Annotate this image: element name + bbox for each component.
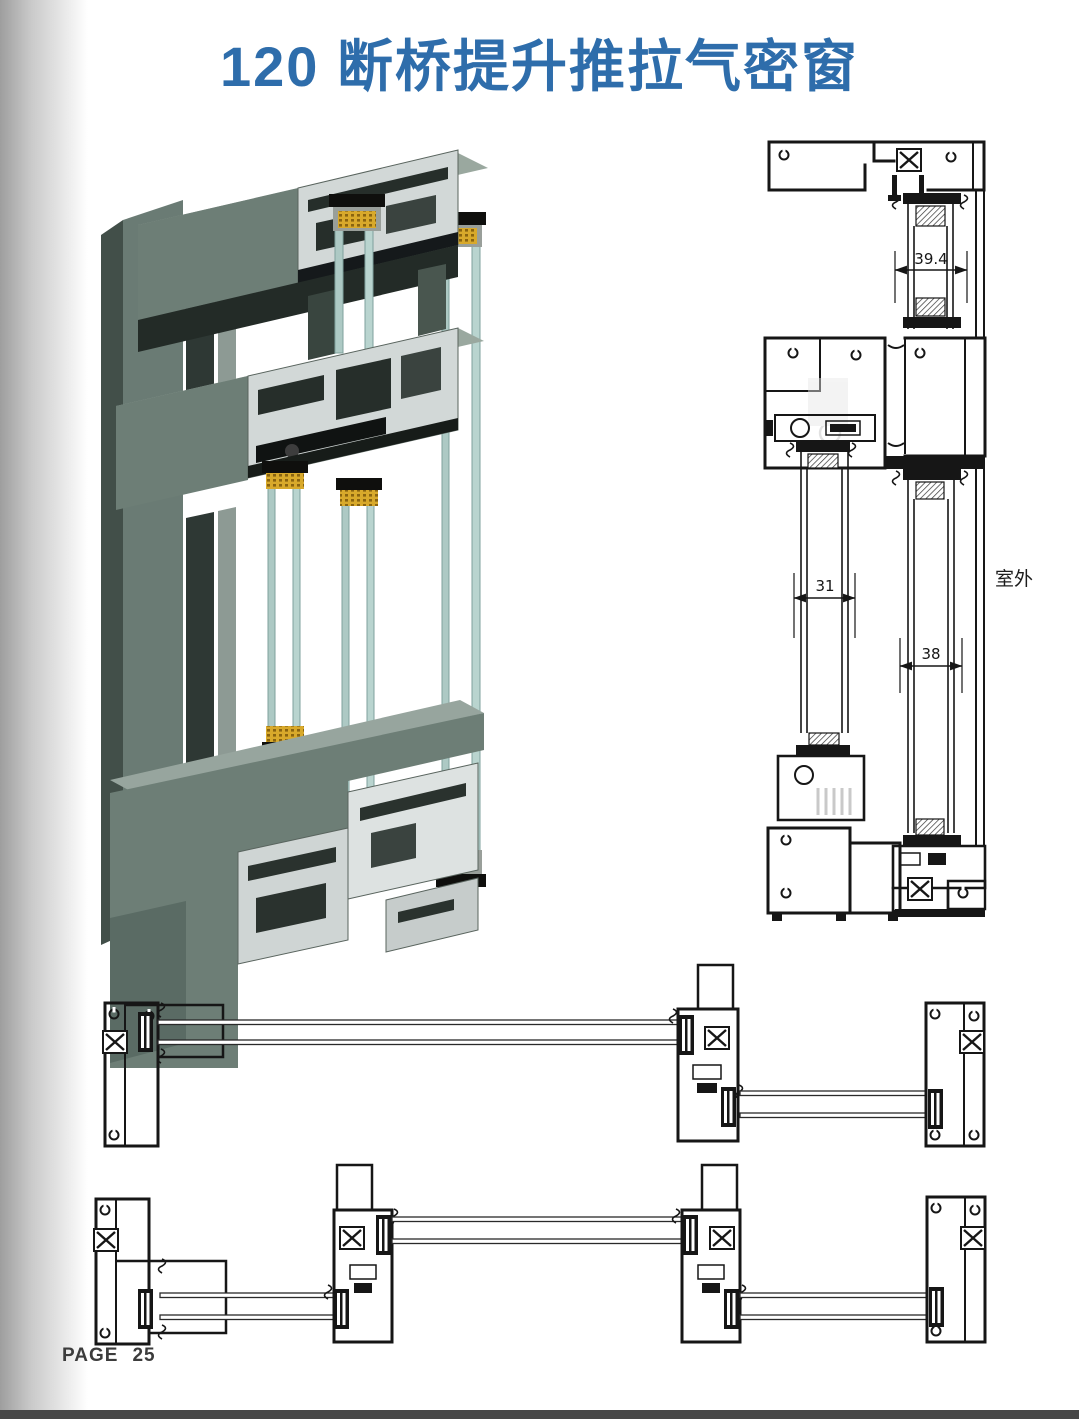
row1-interlock <box>670 965 743 1141</box>
glass-unit-lower-inner <box>262 461 308 754</box>
row2-glass-right <box>740 1293 927 1320</box>
dim-39-4: 39.4 <box>895 250 967 303</box>
row2-left-jamb <box>94 1199 226 1344</box>
catalog-page: 120 断桥提升推拉气密窗 <box>0 0 1079 1419</box>
dim-38: 38 <box>900 638 962 693</box>
dim-top-glass-label: 39.4 <box>914 250 947 268</box>
page-title: 120 断桥提升推拉气密窗 <box>0 22 1079 103</box>
page-number: 25 <box>132 1345 155 1366</box>
page-edge-shadow <box>0 0 88 1419</box>
row1-right-jamb <box>926 1003 984 1146</box>
row1-glass-right <box>740 1091 926 1118</box>
horizontal-sections-drawing <box>78 963 1078 1375</box>
row1-glass-left <box>158 1020 680 1045</box>
outdoor-label: 室外 <box>995 568 1033 590</box>
row2-right-jamb <box>927 1197 985 1342</box>
dim-outer-glass-label: 38 <box>921 645 940 663</box>
row2-interlock-right <box>673 1165 746 1342</box>
product-3d-render <box>86 128 494 1076</box>
row2-glass-left <box>160 1293 336 1320</box>
vertical-section-drawing: 39.4 31 <box>748 133 1078 965</box>
dim-31: 31 <box>794 573 855 638</box>
page-footer-label: PAGE <box>62 1345 118 1366</box>
footer-bar <box>0 1410 1079 1419</box>
dim-inner-glass-label: 31 <box>815 577 834 595</box>
page-footer: PAGE25 <box>62 1345 156 1367</box>
row2-interlock-left <box>325 1165 398 1342</box>
row2-glass-mid <box>392 1217 682 1244</box>
